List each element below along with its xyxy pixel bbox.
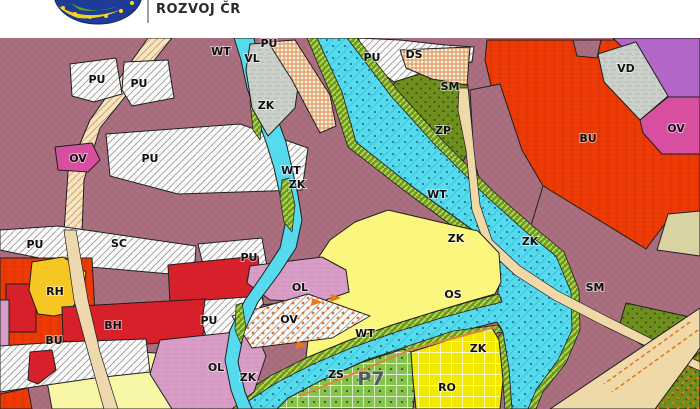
zoning-map: PUWTVLPUDSPUPUSMVDZKOVZPBUOVPUWTZKWTZKZK… (0, 38, 700, 409)
zone-label-bu-31: BU (45, 334, 62, 347)
zone-pink (0, 300, 9, 350)
zone-label-zk-19: ZK (522, 235, 539, 248)
page-header: ROZVOJ ČR (0, 0, 700, 38)
zone-label-wt-1: WT (211, 45, 231, 58)
zone-label-pu-3: PU (364, 51, 381, 64)
zone-polygons (0, 38, 700, 409)
zone-label-zs-34: ZS (328, 368, 344, 381)
zone-label-ol-25: OL (292, 281, 308, 294)
zone-label-ol-33: OL (208, 361, 224, 374)
zone-label-os-26: OS (444, 288, 461, 301)
zone-label-pu-5: PU (89, 73, 106, 86)
zone-label-pu-6: PU (131, 77, 148, 90)
zone-label-ov-13: OV (69, 152, 87, 165)
zone-label-zk-16: ZK (289, 178, 306, 191)
brand-text: ROZVOJ ČR (156, 2, 241, 17)
zone-label-ds-4: DS (405, 48, 422, 61)
zone-label-pu-14: PU (142, 152, 159, 165)
zone-label-zk-9: ZK (258, 99, 275, 112)
zone-label-p7-36: P7 (357, 368, 384, 390)
zone-label-vl-2: VL (244, 52, 260, 65)
zone-label-sm-23: SM (586, 281, 605, 294)
zone-sm (573, 40, 601, 58)
zone-label-wt-30: WT (355, 327, 375, 340)
map-canvas: PUWTVLPUDSPUPUSMVDZKOVZPBUOVPUWTZKWTZKZK… (0, 38, 700, 409)
zone-label-wt-15: WT (281, 164, 301, 177)
zone-label-zk-35: ZK (240, 371, 257, 384)
screenshot-stage: ROZVOJ ČR (0, 0, 700, 409)
zone-label-wt-17: WT (427, 188, 447, 201)
zone-label-ov-10: OV (667, 122, 685, 135)
zone-label-ro-37: RO (438, 381, 456, 394)
zone-label-ov-27: OV (280, 313, 298, 326)
zone-label-pu-20: PU (27, 238, 44, 251)
zone-label-zk-18: ZK (448, 232, 465, 245)
logo-divider (147, 0, 149, 23)
zone-label-pu-28: PU (201, 314, 218, 327)
zone-label-vd-8: VD (617, 62, 635, 75)
zone-label-sm-7: SM (441, 80, 460, 93)
zone-label-pu-0: PU (261, 38, 278, 50)
zone-label-bu-12: BU (579, 132, 596, 145)
zone-label-zp-11: ZP (435, 124, 451, 137)
eu-logo (0, 0, 150, 38)
zone-label-bh-29: BH (104, 319, 122, 332)
zone-label-sc-21: SC (111, 237, 127, 250)
zone-label-pu-22: PU (241, 251, 258, 264)
zone-label-rh-24: RH (46, 285, 64, 298)
zone-label-zk-32: ZK (470, 342, 487, 355)
